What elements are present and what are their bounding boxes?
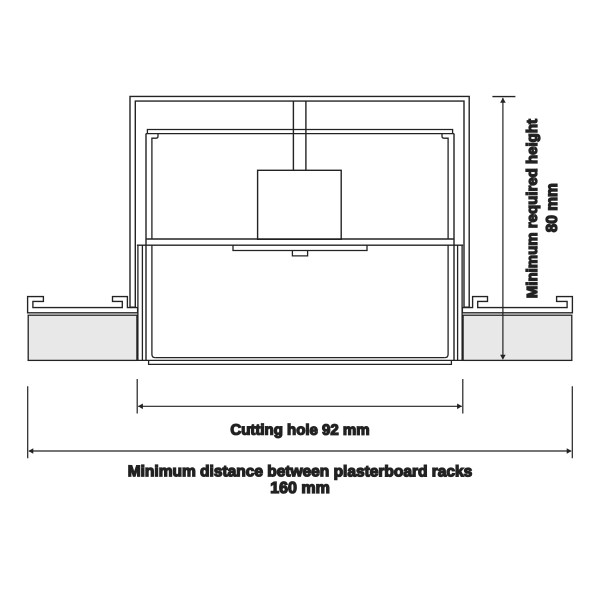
svg-text:80 mm: 80 mm (544, 183, 561, 232)
svg-text:Minimum required height: Minimum required height (524, 119, 541, 298)
svg-text:Minimum distance between plast: Minimum distance between plasterboard ra… (128, 463, 473, 480)
svg-text:Cutting hole 92 mm: Cutting hole 92 mm (230, 422, 369, 439)
svg-text:160 mm: 160 mm (270, 480, 330, 497)
